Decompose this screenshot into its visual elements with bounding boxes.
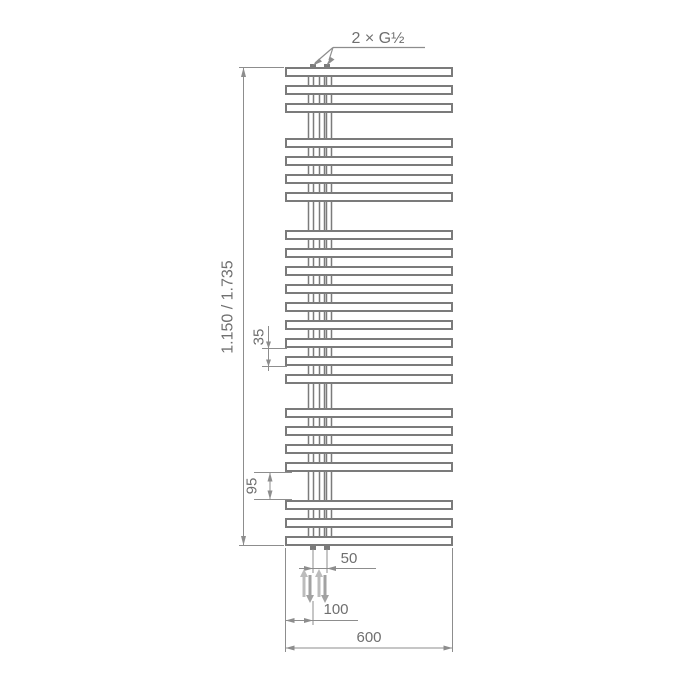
radiator-bar bbox=[286, 357, 452, 365]
connection-offset-dimension: 100 bbox=[286, 601, 359, 625]
radiator-bar bbox=[286, 193, 452, 201]
arrowhead-left bbox=[286, 618, 295, 623]
connection-spacing-dimension: 50 bbox=[299, 549, 376, 573]
arrowhead-right bbox=[304, 566, 313, 571]
radiator-bar bbox=[286, 463, 452, 471]
tube-spacing-dimension: 35 bbox=[251, 326, 288, 371]
arrowhead-left bbox=[327, 566, 336, 571]
arrowhead-left bbox=[286, 646, 295, 651]
group-gap-dimension: 95 bbox=[244, 473, 293, 500]
radiator-bar bbox=[286, 267, 452, 275]
radiator-bar bbox=[286, 427, 452, 435]
technical-drawing-page: 1.150 / 1.735 2 × G½ 35 95 50 bbox=[0, 0, 700, 700]
radiator-bar bbox=[286, 339, 452, 347]
radiator-bar bbox=[286, 409, 452, 417]
connection-label: 2 × G½ bbox=[352, 30, 405, 47]
height-dimension: 1.150 / 1.735 bbox=[220, 68, 285, 546]
connection-spacing-label: 50 bbox=[341, 550, 358, 567]
flow-up-arrow-icon bbox=[315, 569, 323, 597]
radiator-bar bbox=[286, 175, 452, 183]
connection-label-group: 2 × G½ bbox=[312, 30, 425, 66]
arrowhead-down bbox=[268, 491, 273, 500]
radiator-dimension-drawing: 1.150 / 1.735 2 × G½ 35 95 50 bbox=[0, 0, 700, 700]
arrowhead-right bbox=[444, 646, 453, 651]
arrowhead-down bbox=[241, 536, 246, 546]
group-gap-label: 95 bbox=[244, 478, 261, 495]
radiator-bar bbox=[286, 139, 452, 147]
connection-offset-label: 100 bbox=[323, 601, 348, 618]
arrowhead-up bbox=[268, 473, 273, 482]
width-dimension-label: 600 bbox=[356, 629, 381, 646]
leader-arrowhead bbox=[326, 57, 335, 66]
radiator-bar bbox=[286, 321, 452, 329]
flow-down-arrow-icon bbox=[321, 575, 329, 603]
arrowhead-right bbox=[304, 618, 313, 623]
radiator-bar bbox=[286, 303, 452, 311]
height-dimension-label: 1.150 / 1.735 bbox=[220, 260, 237, 354]
radiator-bar bbox=[286, 249, 452, 257]
radiator-bar bbox=[286, 104, 452, 112]
leader-arrowhead bbox=[312, 59, 322, 67]
tube-spacing-label: 35 bbox=[251, 329, 268, 346]
arrowhead-down bbox=[266, 360, 271, 367]
flow-up-arrow-icon bbox=[300, 569, 308, 597]
arrowhead-up bbox=[241, 68, 246, 78]
radiator-bar bbox=[286, 519, 452, 527]
radiator-bar bbox=[286, 157, 452, 165]
radiator-bar bbox=[286, 537, 452, 545]
radiator-bar bbox=[286, 68, 452, 76]
radiator-bar bbox=[286, 231, 452, 239]
radiator-bar bbox=[286, 375, 452, 383]
radiator-bar bbox=[286, 86, 452, 94]
flow-down-arrow-icon bbox=[306, 575, 314, 603]
radiator-bar bbox=[286, 501, 452, 509]
radiator-bar bbox=[286, 445, 452, 453]
flow-arrows bbox=[300, 569, 329, 603]
radiator-bar bbox=[286, 285, 452, 293]
